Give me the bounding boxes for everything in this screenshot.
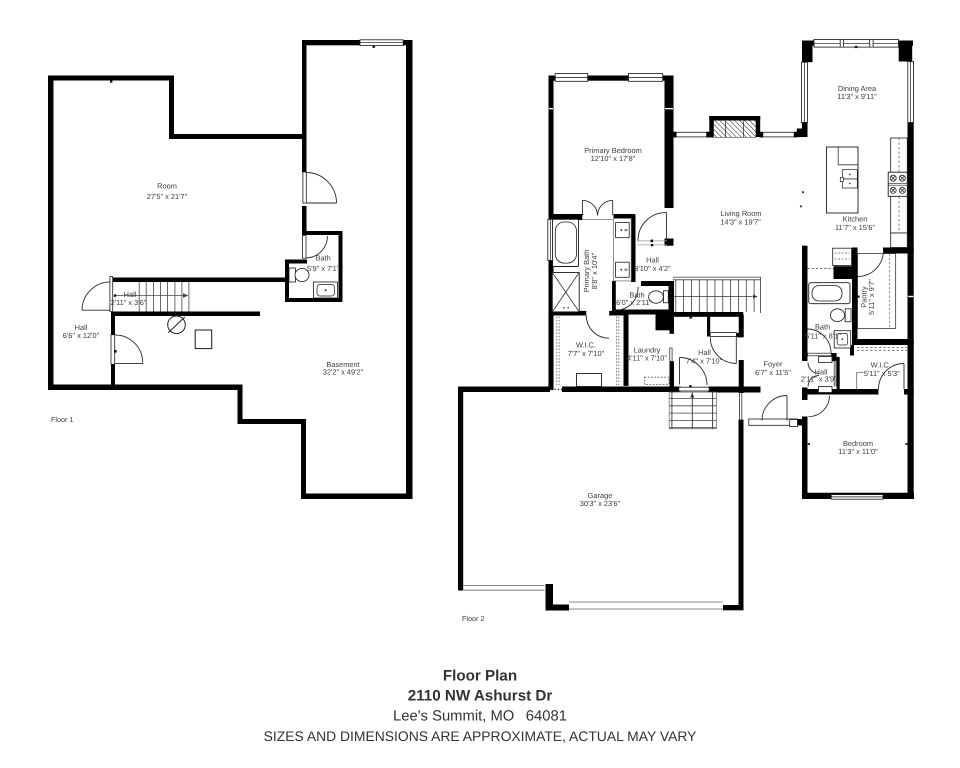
svg-text:Lee's Summit, MO 64081: Lee's Summit, MO 64081 — [393, 709, 567, 725]
svg-text:Bath: Bath — [815, 323, 830, 332]
svg-text:Room: Room — [157, 182, 177, 191]
svg-text:6'6" x 12'0": 6'6" x 12'0" — [63, 331, 100, 340]
svg-text:3'10" x 4'2": 3'10" x 4'2" — [634, 264, 671, 273]
svg-text:32'2" x 49'2": 32'2" x 49'2" — [323, 368, 364, 377]
svg-text:14'3" x 19'7": 14'3" x 19'7" — [720, 218, 761, 227]
svg-text:2'11" x 3'6": 2'11" x 3'6" — [111, 298, 147, 307]
svg-text:5'9" x 7'1": 5'9" x 7'1" — [307, 264, 340, 273]
svg-text:4'11" x 7'10": 4'11" x 7'10" — [627, 354, 667, 363]
svg-text:27'5" x 21'7": 27'5" x 21'7" — [147, 192, 188, 201]
svg-text:5'11" x 9'7": 5'11" x 9'7" — [867, 279, 876, 315]
svg-text:2'11" x 3'9": 2'11" x 3'9" — [801, 375, 837, 384]
svg-text:Floor Plan: Floor Plan — [443, 668, 517, 685]
svg-text:6'0" x 2'11": 6'0" x 2'11" — [616, 298, 652, 307]
svg-text:Bath: Bath — [316, 253, 331, 262]
svg-text:30'3" x 23'6": 30'3" x 23'6" — [580, 499, 621, 508]
svg-text:5'11" x 5'3": 5'11" x 5'3" — [864, 369, 900, 378]
svg-text:Floor 1: Floor 1 — [51, 415, 73, 424]
svg-text:6'7" x 11'5": 6'7" x 11'5" — [755, 368, 791, 377]
svg-text:7'4" x 7'10": 7'4" x 7'10" — [686, 357, 723, 366]
svg-text:2110 NW Ashurst Dr: 2110 NW Ashurst Dr — [408, 688, 553, 705]
svg-text:5'11" x 8'1": 5'11" x 8'1" — [805, 332, 841, 341]
svg-text:11'3" x 9'11": 11'3" x 9'11" — [837, 92, 877, 101]
svg-text:7'7" x 7'10": 7'7" x 7'10" — [568, 349, 605, 358]
svg-text:12'10" x 17'8": 12'10" x 17'8" — [591, 154, 636, 163]
svg-text:11'7" x 15'6": 11'7" x 15'6" — [835, 223, 875, 232]
svg-text:SIZES AND DIMENSIONS ARE APPRO: SIZES AND DIMENSIONS ARE APPROXIMATE, AC… — [264, 728, 697, 744]
svg-text:11'3" x 11'0": 11'3" x 11'0" — [838, 447, 878, 456]
svg-text:Floor 2: Floor 2 — [462, 614, 484, 623]
svg-text:8'8" x 10'4": 8'8" x 10'4" — [590, 252, 599, 289]
